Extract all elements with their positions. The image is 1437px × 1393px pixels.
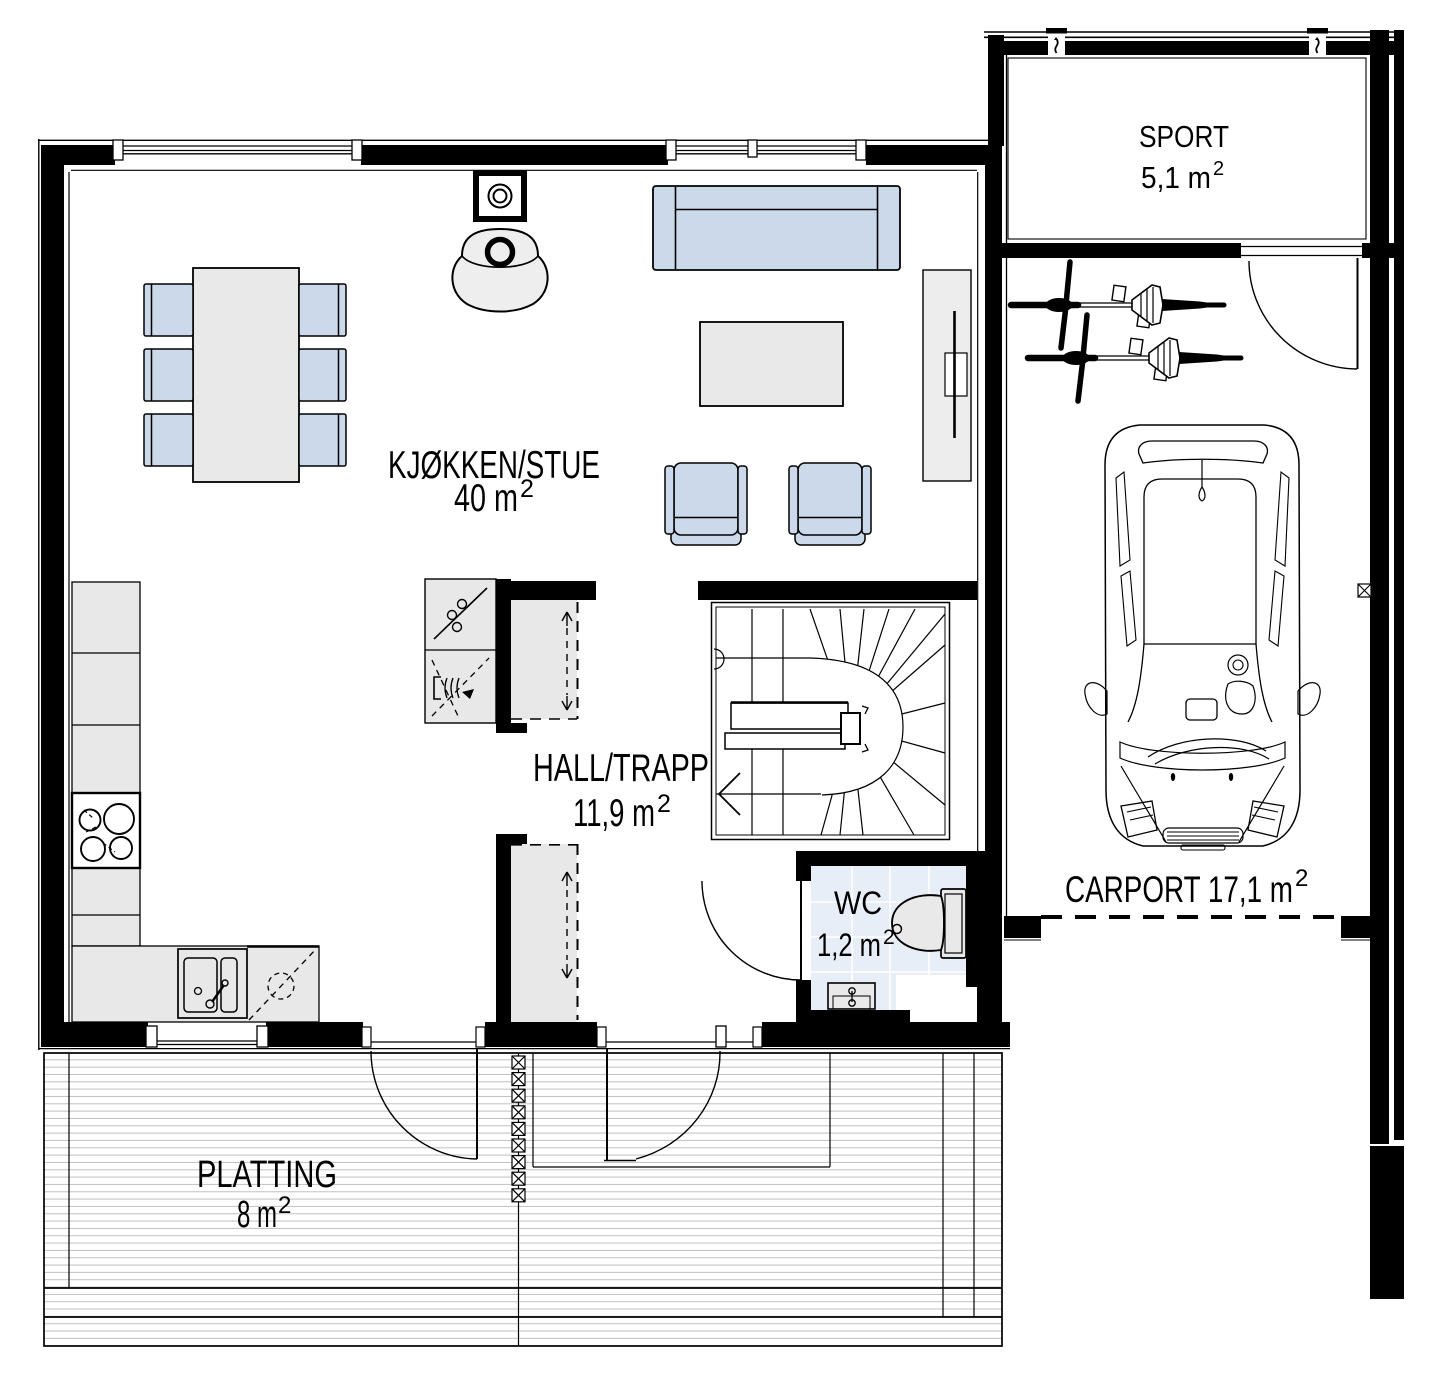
svg-text:2: 2	[278, 1192, 291, 1219]
svg-text:2: 2	[1295, 865, 1308, 892]
svg-text:CARPORT 17,1 m: CARPORT 17,1 m	[1065, 869, 1293, 910]
svg-text:8 m: 8 m	[237, 1194, 277, 1236]
svg-text:SPORT: SPORT	[1139, 119, 1229, 154]
svg-text:5,1 m: 5,1 m	[1141, 160, 1211, 195]
svg-text:2: 2	[883, 926, 895, 949]
svg-text:1,2 m: 1,2 m	[817, 927, 881, 963]
svg-text:HALL/TRAPP: HALL/TRAPP	[533, 747, 709, 790]
svg-text:2: 2	[1213, 158, 1224, 180]
svg-text:40 m: 40 m	[454, 477, 518, 520]
svg-text:2: 2	[520, 475, 534, 503]
svg-text:11,9 m: 11,9 m	[573, 792, 655, 835]
svg-text:2: 2	[657, 790, 671, 818]
svg-text:PLATTING: PLATTING	[197, 1154, 337, 1196]
svg-text:WC: WC	[834, 885, 882, 921]
